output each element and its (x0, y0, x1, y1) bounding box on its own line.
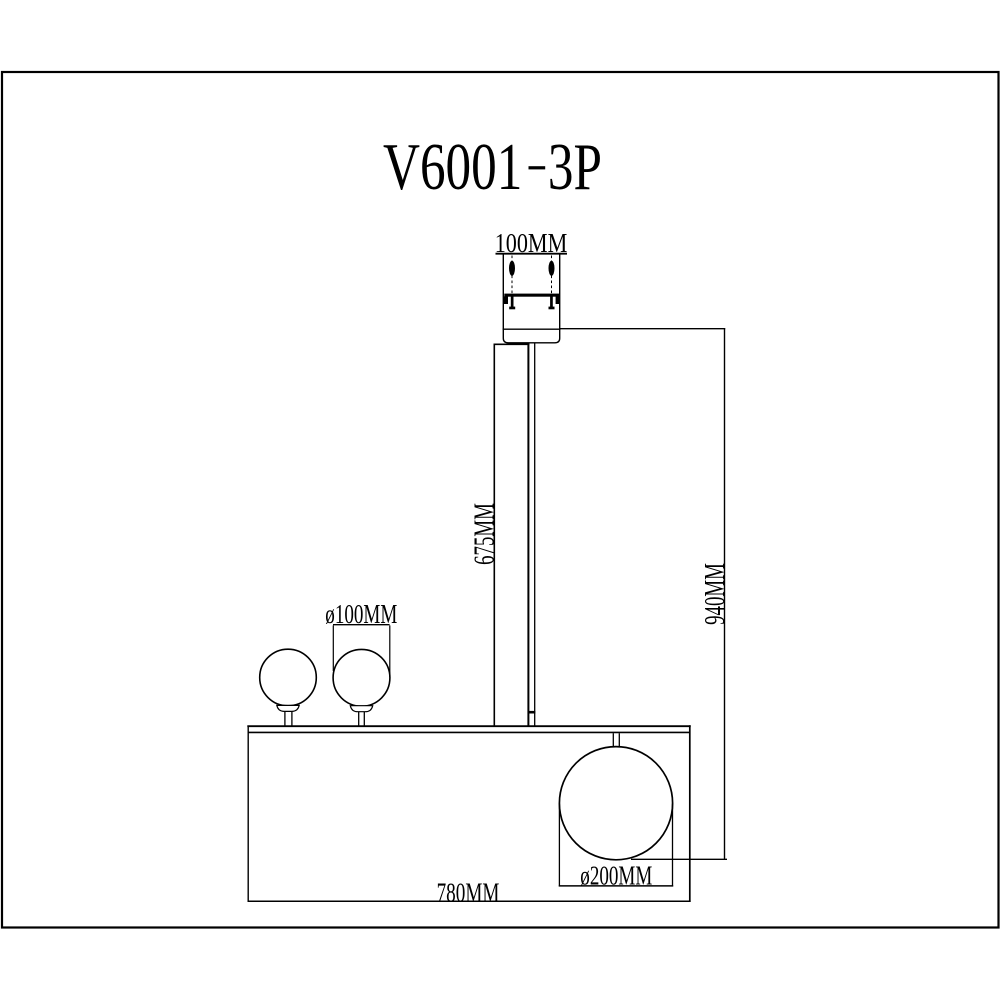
svg-text:ø200MM: ø200MM (580, 861, 652, 891)
svg-text:V6001–3P: V6001–3P (383, 130, 602, 204)
svg-text:940MM: 940MM (699, 563, 731, 625)
svg-text:675MM: 675MM (468, 503, 500, 565)
svg-text:ø100MM: ø100MM (325, 600, 397, 630)
svg-text:780MM: 780MM (437, 878, 500, 908)
